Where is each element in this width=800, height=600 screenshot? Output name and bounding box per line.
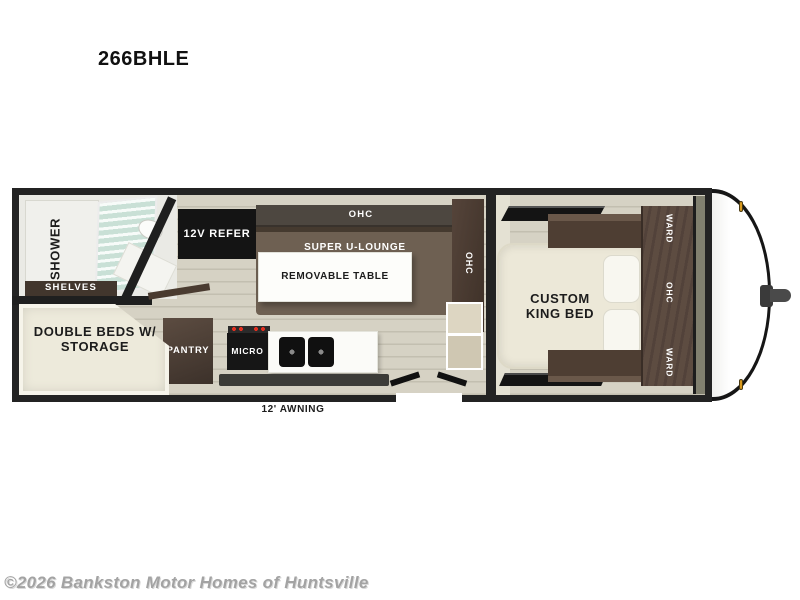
overhead-cabinet-top: OHC xyxy=(256,205,466,227)
double-beds-label-line2: STORAGE xyxy=(61,340,129,355)
marker-light-bottom-icon xyxy=(739,379,743,390)
pillow-top-icon xyxy=(603,255,640,303)
sink-basin-left-icon xyxy=(279,337,305,367)
double-beds-label: DOUBLE BEDS W/ STORAGE xyxy=(24,322,166,358)
king-bed-label-line1: CUSTOM xyxy=(530,292,590,307)
removable-table: REMOVABLE TABLE xyxy=(258,252,412,302)
bedroom-ohc-label: OHC xyxy=(662,276,676,310)
floorplan-page: 266BHLE SHOWER SHELVES 12V REFER OHC SUP… xyxy=(0,0,800,600)
entry-door-opening xyxy=(396,393,462,403)
hitch-coupler-icon xyxy=(770,289,791,302)
galley-floor-mat xyxy=(219,374,389,386)
marker-light-top-icon xyxy=(739,201,743,212)
lounge-side-ohc-label: OHC xyxy=(458,238,478,288)
shower-label: SHOWER xyxy=(46,206,66,292)
page-title: 266BHLE xyxy=(98,48,189,71)
entry-steps xyxy=(446,302,483,370)
dealer-watermark: ©2026 Bankston Motor Homes of Huntsville xyxy=(4,573,369,593)
king-bed-label-line2: KING BED xyxy=(526,307,594,322)
awning-label: 12' AWNING xyxy=(237,403,349,417)
double-beds-label-line1: DOUBLE BEDS W/ xyxy=(34,325,157,340)
pantry-cabinet: PANTRY xyxy=(163,318,213,384)
sink-basin-right-icon xyxy=(308,337,334,367)
king-bed-label: CUSTOM KING BED xyxy=(505,290,615,324)
bathroom-bottom-wall xyxy=(12,296,152,305)
bedroom-divider-wall xyxy=(486,188,496,402)
front-storage-strip xyxy=(693,196,705,394)
shelves-cabinet: SHELVES xyxy=(25,281,117,296)
refrigerator: 12V REFER xyxy=(178,209,256,259)
wardrobe-top-label: WARD xyxy=(662,210,676,248)
wardrobe-bottom-label: WARD xyxy=(662,344,676,382)
bed-overhead-cabinet-top xyxy=(548,214,644,248)
step-lower xyxy=(448,336,481,368)
microwave: MICRO xyxy=(227,333,268,370)
bed-overhead-cabinet-bottom xyxy=(548,350,644,382)
step-upper xyxy=(448,304,481,333)
